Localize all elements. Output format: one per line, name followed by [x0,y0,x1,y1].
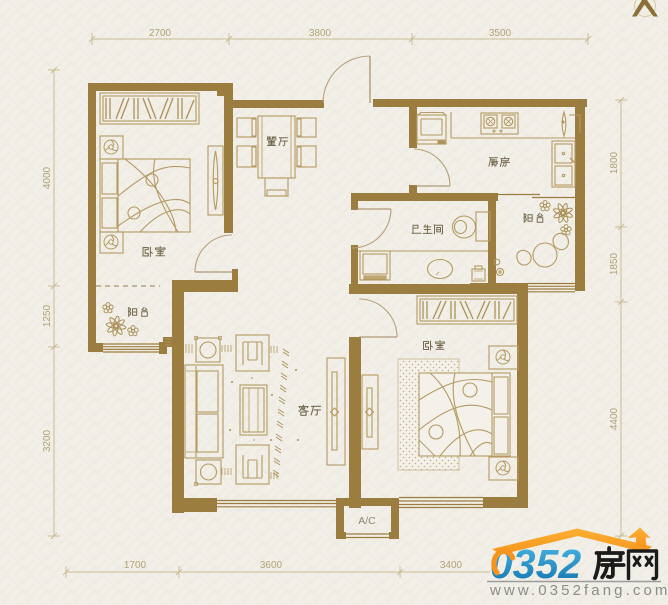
svg-text:A/C: A/C [358,515,376,527]
svg-text:1250: 1250 [42,304,53,327]
svg-text:3200: 3200 [42,429,53,452]
svg-text:4400: 4400 [609,407,620,430]
svg-text:1800: 1800 [609,151,620,174]
svg-text:1700: 1700 [124,560,147,571]
svg-text:1850: 1850 [609,252,620,275]
svg-text:3400: 3400 [440,560,463,571]
svg-text:3500: 3500 [489,28,512,39]
svg-text:3800: 3800 [309,28,332,39]
svg-text:2700: 2700 [149,28,172,39]
svg-text:www.0352fang.com: www.0352fang.com [489,582,668,599]
svg-text:4000: 4000 [42,166,53,189]
svg-text:3600: 3600 [260,560,283,571]
svg-text:0352: 0352 [490,541,581,587]
